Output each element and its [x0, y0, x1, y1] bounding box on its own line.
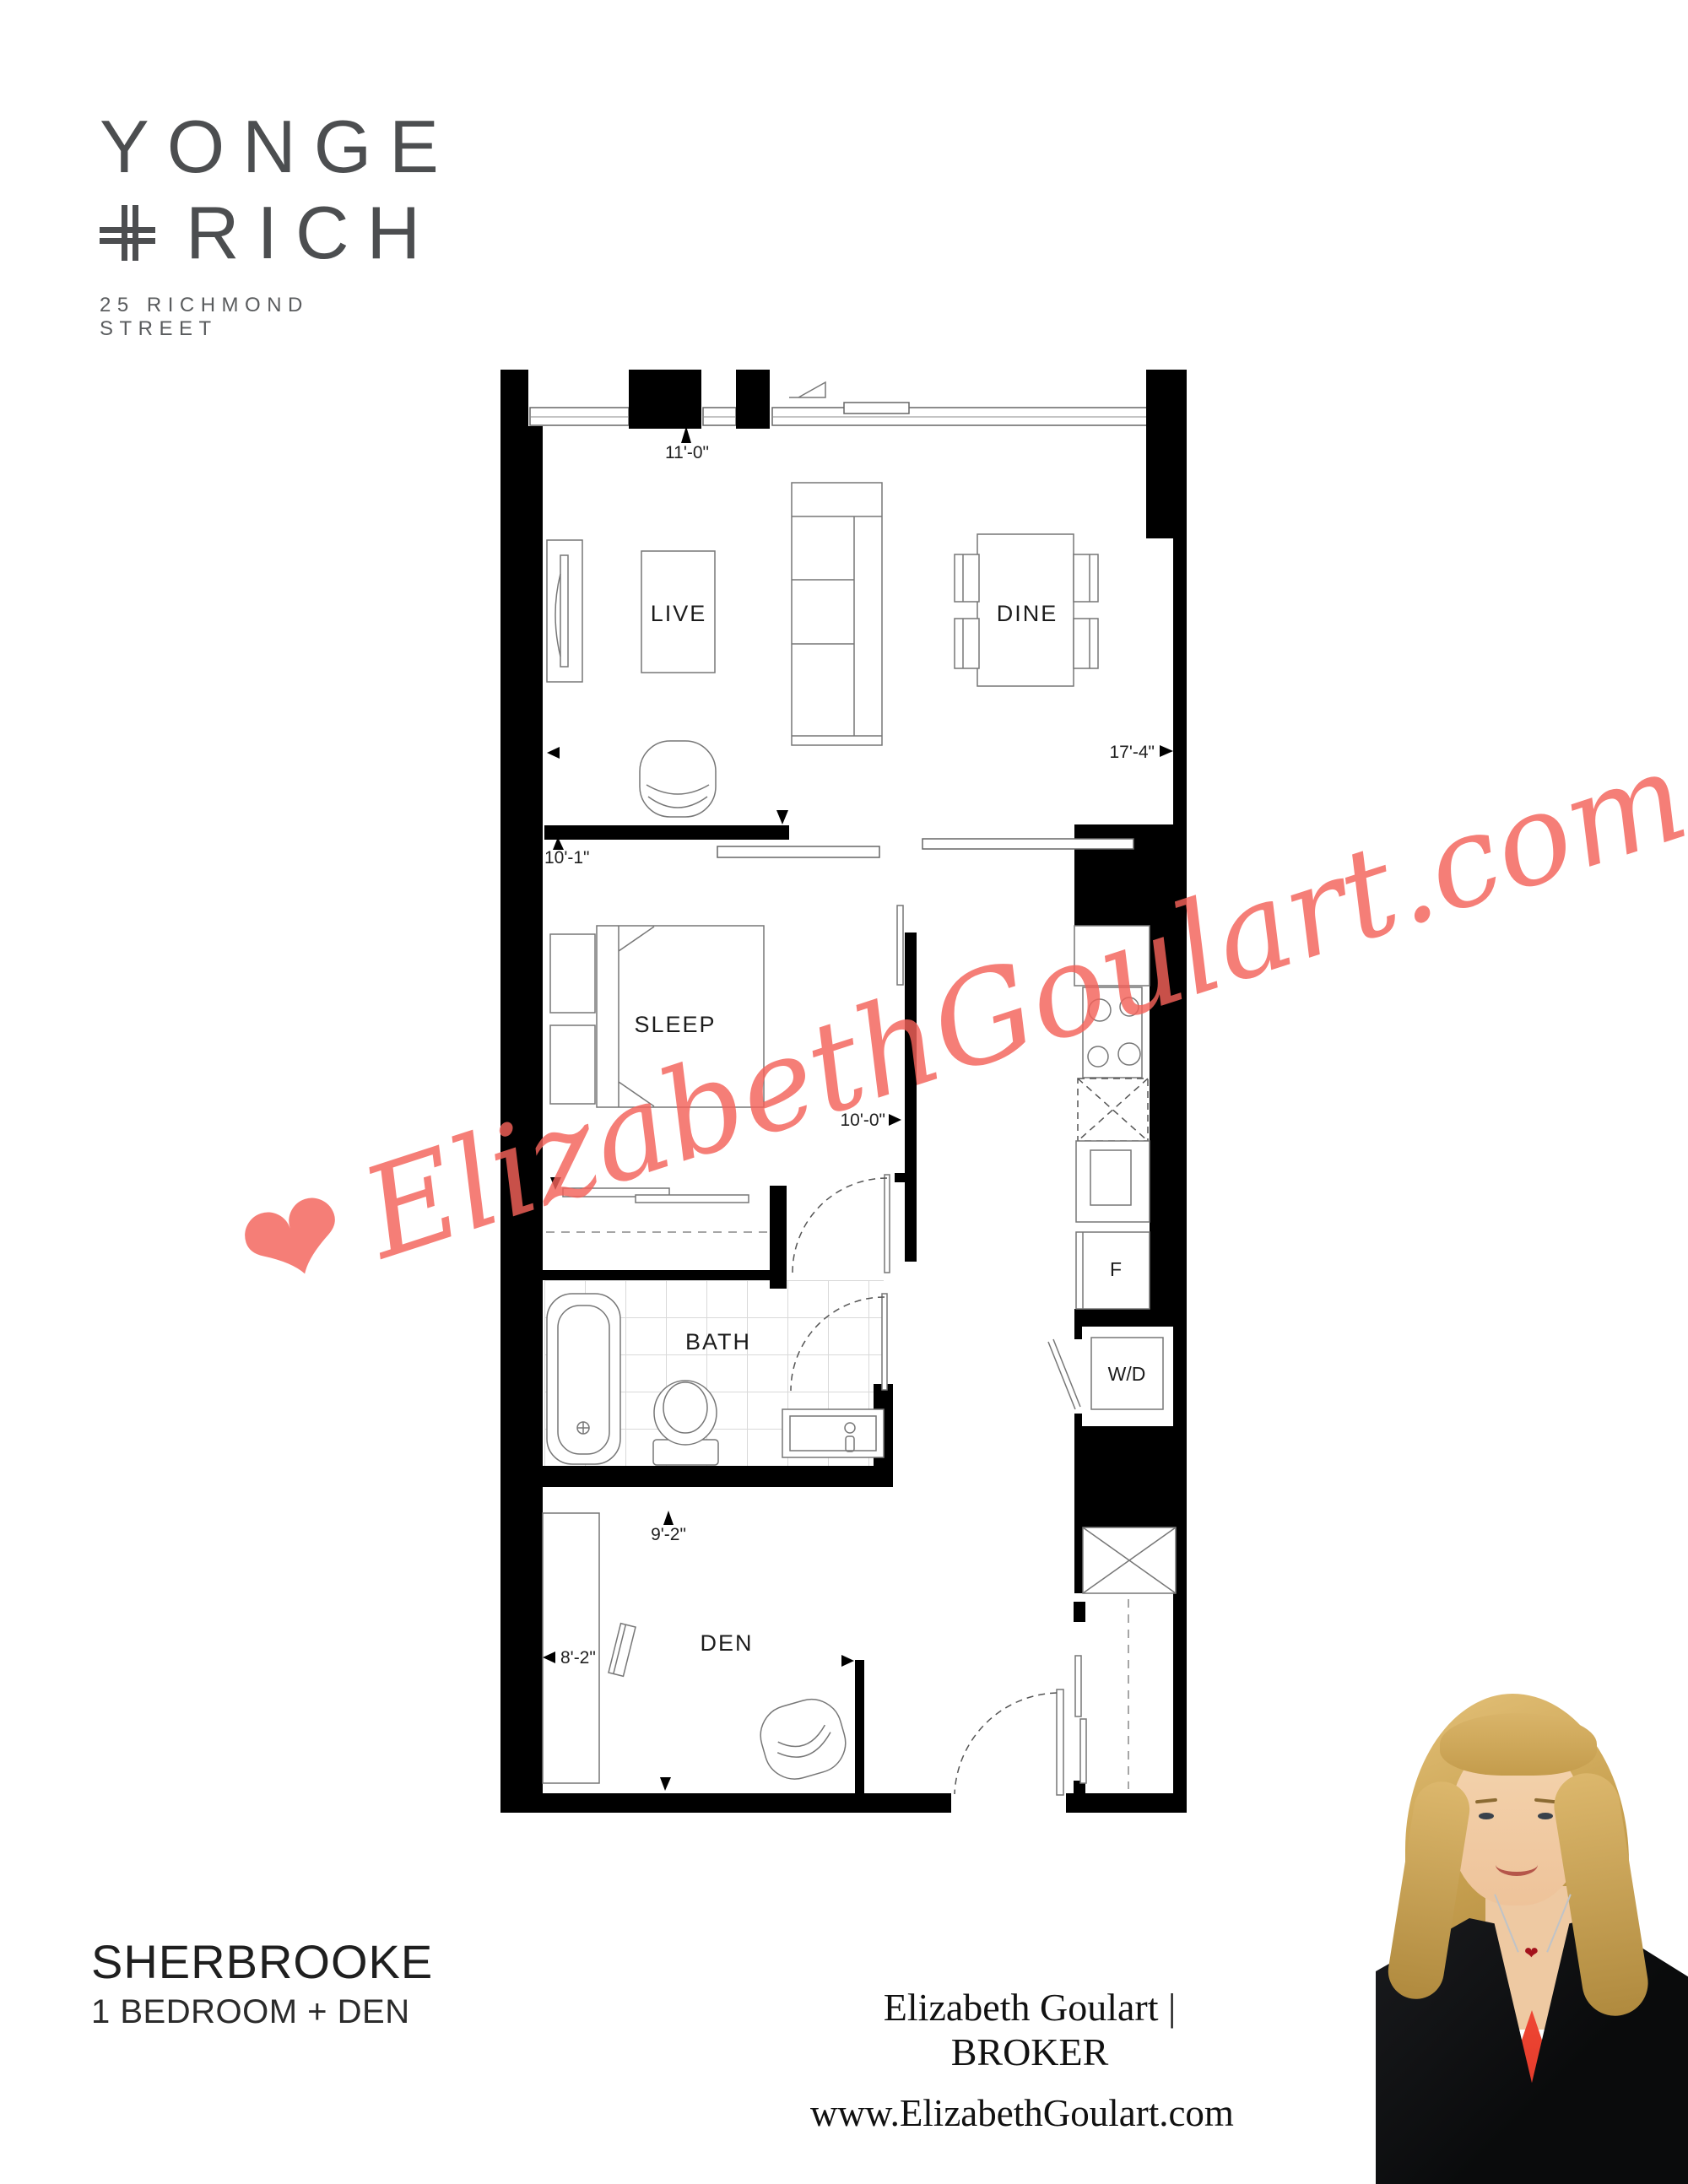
dim-arrow-right: [841, 1655, 854, 1667]
bath-door-leaf: [882, 1294, 887, 1390]
fridge-label: F: [1110, 1258, 1122, 1280]
dim-arrow-up: [663, 1511, 674, 1525]
photo-smile: [1496, 1853, 1538, 1876]
dining-chair: [955, 554, 979, 602]
photo-eye: [1538, 1813, 1553, 1819]
agent-name: Elizabeth Goulart | BROKER: [819, 1985, 1241, 2074]
plan-name: SHERBROOKE: [91, 1934, 433, 1989]
wd-door-leaf: [1048, 1342, 1075, 1409]
dim-sleep-width: 10'-1": [544, 848, 590, 868]
sofa: [792, 483, 882, 745]
entry-closet-door: [1080, 1719, 1086, 1783]
dim-den-width: 8'-2": [560, 1648, 596, 1668]
broker-photo: ❤: [1376, 1679, 1688, 2184]
dim-arrow-right: [1160, 745, 1173, 757]
dim-arrow-right: [889, 1114, 901, 1126]
balcony-slider-panel: [844, 403, 909, 414]
bath-door-swing: [791, 1297, 885, 1391]
dim-arrow-down: [776, 810, 788, 824]
kitchen-bulkhead: [922, 839, 1133, 849]
plan-type: 1 BEDROOM + DEN: [91, 1993, 410, 2031]
bath-fixtures: [547, 1294, 887, 1465]
balcony-door-direction-icon: [789, 382, 825, 397]
entry-door-leaf: [1057, 1689, 1063, 1795]
dim-sleep-length: 10'-0": [841, 1111, 886, 1130]
den-label: DEN: [700, 1630, 753, 1656]
dining-chair: [1074, 554, 1098, 602]
closet-slider-panel: [636, 1195, 749, 1203]
ottoman: [640, 741, 716, 817]
dim-live-length: 17'-4": [1110, 743, 1155, 762]
nightstand: [550, 934, 595, 1013]
photo-eye: [1479, 1813, 1494, 1819]
lounge-chair: [754, 1692, 852, 1786]
kitchen-sink: [1076, 1141, 1150, 1222]
photo-heart-pendant-icon: ❤: [1524, 1943, 1539, 1964]
agent-website: www.ElizabethGoulart.com: [810, 2091, 1232, 2135]
windows: [530, 382, 1155, 425]
dim-arrow-left: [547, 747, 560, 759]
live-label: LIVE: [651, 601, 707, 626]
nightstand: [550, 1025, 595, 1104]
bedroom-door-swing: [793, 1178, 887, 1273]
tv: [560, 555, 568, 667]
bedroom-door-leaf: [885, 1175, 890, 1273]
bath-label: BATH: [685, 1329, 751, 1354]
dim-live-width: 11'-0": [665, 443, 709, 462]
photo-hair-fringe: [1440, 1713, 1597, 1776]
flyer-page: YONGE RICH 25 RICHMOND STREET: [0, 0, 1688, 2184]
bedroom-sliding-door: [717, 846, 879, 857]
washer-dryer-label: W/D: [1108, 1363, 1146, 1385]
dim-arrow-down: [550, 1177, 561, 1190]
dine-label: DINE: [997, 601, 1058, 626]
desk-chair: [609, 1624, 636, 1677]
sleep-room-furniture: [546, 905, 903, 1273]
entry-door-swing: [955, 1693, 1057, 1794]
kitchen-counter: [1074, 926, 1150, 986]
dining-chair: [1074, 619, 1098, 668]
dining-chair: [955, 619, 979, 668]
sleep-label: SLEEP: [634, 1012, 716, 1037]
entry-closet-door: [1075, 1656, 1081, 1716]
dim-den-depth: 9'-2": [651, 1525, 686, 1544]
mirror-panel: [897, 905, 903, 985]
live-room-furniture: [547, 483, 882, 817]
dim-arrow-down: [660, 1777, 671, 1791]
